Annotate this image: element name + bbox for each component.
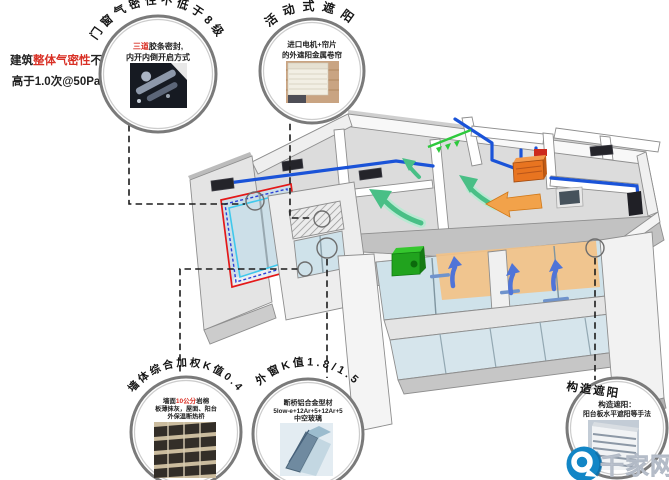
wall-panel (627, 191, 643, 216)
callout-airtightness: 门窗气密性不低于8级 三道胶条密封, 内开内倒开启方式 (87, 0, 229, 132)
window-k-line1: 断桥铝合金型材 (284, 398, 333, 407)
window-k-line2: 5low-e+12Ar+5+12Ar+5 (273, 408, 343, 415)
window-k-line3: 中空玻璃 (294, 414, 322, 423)
airtightness-side-note: 建筑整体气密性不 高于1.0次@50Pa (10, 53, 103, 88)
structural-shading-line2: 阳台板水平遮阳等手法 (583, 409, 651, 418)
movable-shading-line1: 进口电机+帘片 (287, 39, 336, 49)
movable-shading-line2: 的外遮阳金属卷帘 (282, 50, 342, 60)
airtightness-rest-text: 胶条密封, (149, 41, 183, 51)
window-profile-photo (280, 423, 333, 476)
facade-insulation-photo (154, 422, 216, 478)
wall-k-line1-red: 10公分 (176, 396, 197, 405)
airtightness-red-text: 三道 (133, 41, 149, 51)
svg-text:三道胶条密封,: 三道胶条密封, (133, 41, 183, 51)
watermark-text: 千家网 (600, 452, 669, 480)
window-hardware-photo (130, 59, 187, 108)
svg-text:墙面10公分岩棉: 墙面10公分岩棉 (163, 396, 210, 405)
wall-k-line1-prefix: 墙面 (163, 396, 177, 405)
diagram-canvas: 建筑整体气密性不 高于1.0次@50Pa 门窗气密性不低于8级 三道胶条密封, … (0, 0, 669, 480)
roller-shutter-photo (286, 61, 339, 103)
svg-text:建筑整体气密性不: 建筑整体气密性不 (10, 53, 103, 67)
wall-k-line1-suffix: 岩棉 (195, 396, 210, 405)
note-line2: 高于1.0次@50Pa (12, 74, 101, 88)
callout-window-k: 外窗K值1.8/1.5 断桥铝合金型材 5low-e+12Ar+5+12Ar+5… (252, 354, 363, 480)
callout-wall-k: 墙体综合加权K值0.4 墙面10公分岩棉 板薄抹灰，屋面、阳台 外保温断热桥 (125, 356, 246, 480)
wall-k-line3: 外保温断热桥 (167, 413, 205, 421)
wall-k-line2: 板薄抹灰，屋面、阳台 (155, 405, 217, 413)
note-highlight: 整体气密性 (32, 53, 91, 67)
structural-shading-line1: 构造遮阳： (598, 399, 636, 409)
passive-house-diagram: 建筑整体气密性不 高于1.0次@50Pa 门窗气密性不低于8级 三道胶条密封, … (0, 0, 669, 480)
wall-picture (556, 187, 583, 208)
note-prefix: 建筑 (10, 53, 33, 67)
airtightness-line2: 内开内倒开启方式 (126, 52, 190, 62)
callout-movable-shading: 活动式遮阳 进口电机+帘片 的外遮阳金属卷帘 (260, 0, 364, 123)
green-equipment-box (392, 246, 426, 276)
